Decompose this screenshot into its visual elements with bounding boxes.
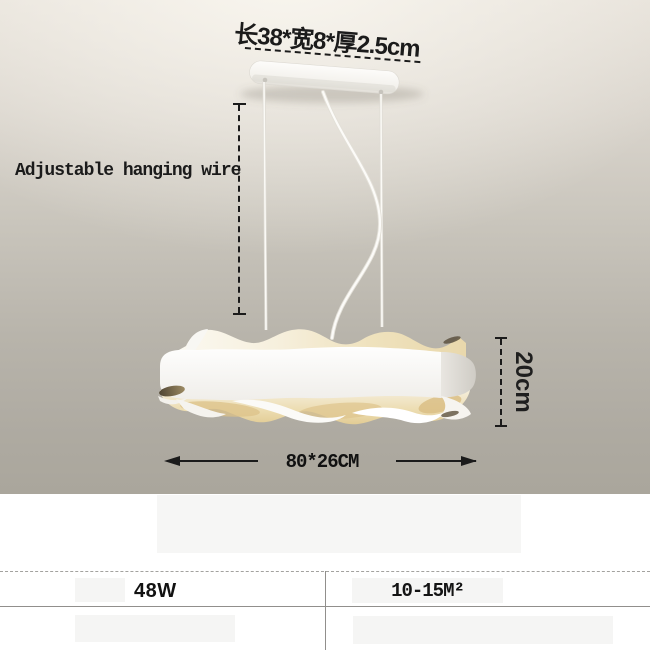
hanging-wire-label: Adjustable hanging wire <box>15 161 240 181</box>
shade-size-label: 80*26CM <box>286 451 359 473</box>
dimension-tick <box>495 425 507 427</box>
placeholder-box-left-bottom <box>75 615 235 642</box>
wave-pendant-lamp <box>158 329 476 424</box>
power-value: 48W <box>134 580 177 603</box>
arrow-right-icon <box>461 456 477 466</box>
placeholder-box-area: 10-15M² <box>352 578 503 603</box>
placeholder-box-main <box>157 495 521 553</box>
dimension-tick <box>233 313 246 315</box>
shade-height-label: 20cm <box>509 351 537 412</box>
hanging-wires <box>264 82 382 338</box>
product-dimension-diagram: 长38*宽8*厚2.5cm Adjustable hanging wire 20… <box>0 0 650 650</box>
wire-length-dimension-line <box>233 103 246 315</box>
lamp-band-right-cap <box>441 352 476 398</box>
shade-height-dimension-line <box>495 337 507 427</box>
coverage-area-value: 10-15M² <box>391 580 464 602</box>
lamp-outer-band <box>160 347 441 400</box>
dashed-line <box>238 105 240 313</box>
power-cord <box>323 92 380 338</box>
spec-column-divider <box>325 571 326 650</box>
dashed-line <box>500 339 502 425</box>
placeholder-box-right-bottom <box>353 616 613 644</box>
hanging-wire-right <box>381 94 382 327</box>
wire-fixing-left <box>263 78 268 83</box>
wire-fixing-right <box>379 90 384 95</box>
width-dimension-line-left <box>178 460 258 462</box>
placeholder-box-power <box>75 578 125 602</box>
